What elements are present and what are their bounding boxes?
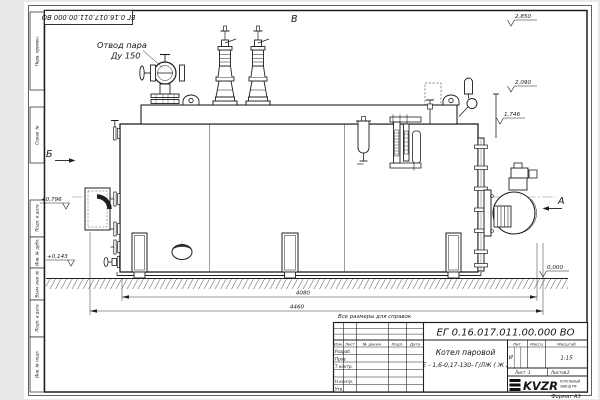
margin-label: Инв. № дубл. [35,238,40,265]
logo-text: KVZR [523,379,558,393]
change-header: Подп. [392,342,404,347]
sheet-value: 1 [528,370,531,375]
boiler-drawing-svg: Перв. примен. Справ. № Подп. и дата Инв.… [0,0,600,400]
signature-row-label: Н.контр. [335,379,353,384]
doc-number: ЕГ 0.16.017.011.00.000 ВО [437,328,575,339]
elevation-value: 0,000 [547,265,563,271]
title-block: Изм. Лист № докум. Подп. Дата Разраб. Пр… [334,323,588,394]
lifting-lug [443,95,459,105]
dimension-value: 4080 [296,291,311,297]
lit-header: Лит. [512,341,522,346]
change-header: Изм. [334,342,343,347]
margin-label: Подп. и дата [35,204,40,232]
blowdown-valve [104,257,120,268]
support-leg [446,233,461,278]
margin-label: Взам. инв. № [35,270,40,297]
signature-row-label: Пров. [335,356,347,361]
scale-value: 1:15 [560,356,573,362]
sheets-label: Листов [550,370,567,375]
lifting-lug [183,95,199,105]
logo-emblem-bar [510,384,521,387]
top-stamp: ЕГ 0.16.017.011.00.000 ВО [41,11,135,25]
margin-label: Инв. № подл. [35,350,40,378]
view-label-top: В [291,14,298,25]
margin-label: Перв. примен. [35,36,40,66]
reference-note: Все размеры для справок [338,314,412,320]
scale-header: Масштаб [557,341,576,346]
format-note: Формат А3 [551,394,581,400]
elevation-value: +0,796 [41,197,62,203]
signature-row-label: Утв. [335,386,344,391]
change-header: Дата [409,342,421,347]
sheet-label: Лист [514,370,526,375]
change-header: Лист [344,342,356,347]
support-leg [132,233,147,278]
elevation-value: 2,090 [515,80,531,86]
drawing-sheet: Перв. примен. Справ. № Подп. и дата Инв.… [0,0,600,400]
ground-hatch [46,279,568,290]
signature-row-label: Т.контр. [335,364,353,369]
sheets-value: 2 [567,370,570,375]
margin-label: Подп. и дата [35,304,40,332]
logo-subtext-1: КОТЕЛЬНЫЙ [560,379,581,384]
boiler-body [117,105,481,276]
support-leg [282,233,298,278]
logo-emblem-bar [510,379,521,382]
view-label-left: Б [46,149,53,160]
gauge-glass-column [404,124,410,161]
product-designation: Е - 1,6-0,17-130- Г/ЛЖ ( Ж ) [423,362,509,369]
margin-label: Справ. № [35,125,40,144]
lit-value: И [509,355,513,361]
steam-outlet-text-1: Отвод пара [97,40,147,50]
steam-outlet-text-2: Ду 150 [110,51,140,61]
elevation-value: +0,143 [47,254,68,260]
logo-subtext-2: ЗАВОД РФ [560,385,577,389]
view-label-right: А [557,196,565,207]
signature-row-label: Разраб. [335,349,351,354]
change-header: № докум. [362,342,382,347]
burner-control-box [85,188,110,230]
logo-emblem-bar [510,388,521,391]
elevation-value: 2,850 [515,14,531,20]
top-stamp-number: ЕГ 0.16.017.011.00.000 ВО [41,13,135,21]
mass-header: Масса [530,341,543,346]
dimension-value: 4460 [290,305,305,311]
elevation-value: 1,746 [504,112,520,118]
gauge-capsule [413,131,421,163]
product-name: Котел паровой [436,348,496,357]
gauge-glass-column [394,122,401,163]
